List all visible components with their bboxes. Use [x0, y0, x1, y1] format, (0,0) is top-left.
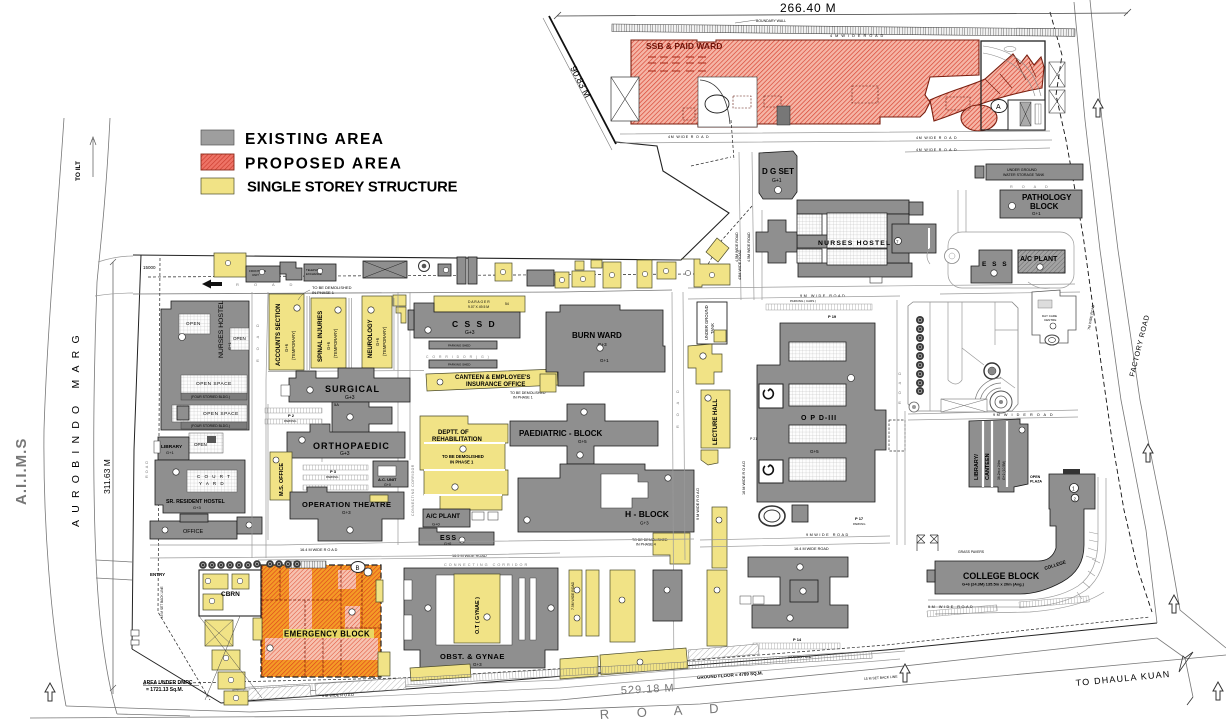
svg-text:IN PHASE 1: IN PHASE 1	[513, 396, 533, 400]
svg-text:G+6 (24.3M) 135.5m x 20m (Avg: G+6 (24.3M) 135.5m x 20m (Avg.)	[962, 582, 1025, 587]
svg-text:OPEN: OPEN	[233, 336, 246, 341]
svg-text:CONNECTING CORRIDOR: CONNECTING CORRIDOR	[444, 563, 529, 567]
svg-text:CANTEEN & EMPLOYEE'S: CANTEEN & EMPLOYEE'S	[455, 375, 530, 381]
svg-text:OPEN: OPEN	[194, 442, 207, 447]
svg-text:NURSES HOSTEL: NURSES HOSTEL	[818, 240, 891, 247]
svg-text:9M W I D E R O A D: 9M W I D E R O A D	[993, 413, 1054, 417]
svg-text:REHABILITATION: REHABILITATION	[432, 437, 482, 443]
svg-text:OPEN: OPEN	[186, 321, 201, 326]
svg-text:C S S D: C S S D	[452, 319, 497, 329]
svg-text:PARKING: PARKING	[853, 522, 865, 526]
svg-text:O P D-III: O P D-III	[801, 415, 837, 422]
svg-text:15000: 15000	[143, 265, 156, 270]
svg-text:4.5M WIDE ROAD: 4.5M WIDE ROAD	[747, 232, 751, 262]
svg-text:ENTRY: ENTRY	[150, 572, 165, 577]
svg-text:Y A R D: Y A R D	[199, 481, 225, 486]
svg-text:G+1: G+1	[166, 450, 174, 455]
svg-text:A.I.I.M.S: A.I.I.M.S	[13, 438, 30, 505]
svg-text:IN PHASE 1: IN PHASE 1	[312, 290, 335, 295]
svg-text:4M WIDE R O A D: 4M WIDE R O A D	[668, 135, 709, 139]
svg-text:UNIT: UNIT	[252, 273, 259, 277]
svg-text:A: A	[996, 104, 1001, 111]
svg-text:CBRN: CBRN	[221, 591, 240, 598]
svg-text:ORTHOPAEDIC: ORTHOPAEDIC	[313, 441, 390, 451]
svg-text:PARKING: PARKING	[284, 419, 296, 423]
svg-text:CANTEEN: CANTEEN	[985, 453, 991, 480]
svg-text:BURN WARD: BURN WARD	[572, 331, 622, 340]
svg-text:UNDER GROUND: UNDER GROUND	[704, 305, 709, 340]
svg-text:TO BE DEMOLISHED: TO BE DEMOLISHED	[442, 454, 484, 459]
svg-text:SSB & PAID WARD: SSB & PAID WARD	[646, 41, 722, 51]
svg-text:P 19: P 19	[828, 314, 837, 319]
svg-text:(FOUR STORIED BLDG.): (FOUR STORIED BLDG.)	[191, 424, 230, 428]
svg-text:IN PHASE 4: IN PHASE 4	[636, 543, 656, 547]
svg-text:9 M WIDE R O A D: 9 M WIDE R O A D	[696, 488, 700, 520]
svg-text:PARKING: PARKING	[326, 475, 338, 479]
svg-text:15 M SET BACK LINE: 15 M SET BACK LINE	[160, 586, 164, 618]
svg-text:PARKING SHED: PARKING SHED	[448, 363, 471, 367]
svg-text:OFFICE: OFFICE	[183, 529, 203, 535]
svg-text:(FOUR STORIED BLDG.): (FOUR STORIED BLDG.)	[191, 395, 230, 399]
svg-text:OPEN SPACE: OPEN SPACE	[196, 381, 232, 387]
svg-text:C O R R I D O R ( G ): C O R R I D O R ( G )	[426, 355, 490, 359]
svg-text:R O A D: R O A D	[676, 386, 680, 428]
svg-text:P 3: P 3	[330, 469, 337, 474]
svg-text:4 M W I D E R O A D: 4 M W I D E R O A D	[830, 34, 884, 38]
svg-text:ACCOUNTS SECTION: ACCOUNTS SECTION	[276, 304, 282, 366]
svg-text:NEUROLOGY: NEUROLOGY	[368, 319, 374, 358]
svg-text:PAEDIATRIC - BLOCK: PAEDIATRIC - BLOCK	[519, 429, 602, 438]
svg-text:G+6: G+6	[326, 341, 331, 350]
svg-text:OPEN SPACE: OPEN SPACE	[203, 411, 239, 417]
svg-text:CENTRE: CENTRE	[1044, 318, 1056, 322]
svg-text:A/C PLANT: A/C PLANT	[1020, 256, 1058, 263]
svg-text:311.63 M: 311.63 M	[102, 459, 112, 494]
svg-text:EMERGENCY BLOCK: EMERGENCY BLOCK	[284, 630, 370, 639]
svg-text:OBST. & GYNAE: OBST. & GYNAE	[440, 652, 505, 661]
svg-text:SPINAL INJURIES: SPINAL INJURIES	[318, 311, 324, 362]
svg-text:R O A D: R O A D	[256, 320, 260, 362]
svg-text:H - BLOCK: H - BLOCK	[625, 509, 670, 519]
svg-text:G+3: G+3	[345, 395, 355, 401]
svg-text:BOUNDARY WALL: BOUNDARY WALL	[756, 19, 786, 23]
svg-text:G+0: G+0	[384, 483, 391, 487]
svg-text:G+0: G+0	[432, 522, 440, 527]
svg-text:36.2m x 24m: 36.2m x 24m	[997, 460, 1001, 480]
svg-text:R O A D: R O A D	[898, 369, 902, 404]
svg-text:SURGICAL: SURGICAL	[325, 384, 380, 394]
svg-text:43M WIDE ROAD: 43M WIDE ROAD	[738, 249, 742, 280]
svg-text:B: B	[356, 566, 360, 572]
svg-text:PARKING SHED: PARKING SHED	[448, 344, 471, 348]
svg-text:GRASS PAVERS: GRASS PAVERS	[958, 550, 985, 554]
svg-text:AREA UNDER DMRC: AREA UNDER DMRC	[143, 680, 193, 686]
svg-text:A/C PLANT: A/C PLANT	[426, 513, 460, 520]
svg-text:G+3: G+3	[342, 510, 351, 515]
svg-text:G+6: G+6	[375, 337, 380, 346]
svg-text:OPEN: OPEN	[1030, 475, 1041, 479]
svg-text:PLAZA: PLAZA	[1030, 480, 1042, 484]
svg-text:= 1721.13 Sq.M.: = 1721.13 Sq.M.	[146, 687, 184, 693]
svg-text:PROPOSED AREA: PROPOSED AREA	[245, 156, 403, 173]
svg-text:C O U R T: C O U R T	[197, 474, 231, 479]
svg-text:PARKING ( CARS ): PARKING ( CARS )	[790, 299, 816, 303]
svg-text:G+3: G+3	[640, 521, 649, 526]
svg-text:16 M WIDE R O A D: 16 M WIDE R O A D	[742, 461, 746, 495]
svg-text:TO BE DEMOLISHED: TO BE DEMOLISHED	[632, 538, 668, 542]
svg-text:R O A D: R O A D	[236, 282, 299, 287]
svg-text:G+3: G+3	[473, 662, 482, 667]
svg-text:LIBRARY/: LIBRARY/	[974, 454, 980, 480]
svg-text:4M WIDE R O A D: 4M WIDE R O A D	[916, 148, 957, 152]
svg-text:DEPTT. OF: DEPTT. OF	[438, 430, 469, 436]
svg-text:AUROBINDO MARG: AUROBINDO MARG	[70, 328, 82, 527]
svg-text:INSURANCE OFFICE: INSURANCE OFFICE	[466, 382, 525, 388]
svg-text:G+2 (10.5M): G+2 (10.5M)	[1002, 461, 1006, 480]
svg-text:54: 54	[505, 302, 509, 306]
svg-text:R O A D: R O A D	[1010, 185, 1052, 189]
svg-text:4M WIDE R O A D: 4M WIDE R O A D	[916, 136, 957, 140]
svg-text:G+5: G+5	[578, 439, 587, 444]
svg-text:(TEMPORARY): (TEMPORARY)	[333, 328, 338, 358]
svg-text:CONNECTING CORRIDOR: CONNECTING CORRIDOR	[411, 464, 415, 516]
svg-text:D A R A G E R: D A R A G E R	[468, 300, 490, 304]
svg-text:16.4 M WIDE R O A D: 16.4 M WIDE R O A D	[300, 548, 338, 552]
svg-text:WATER STORAGE TANK: WATER STORAGE TANK	[1003, 173, 1045, 177]
svg-text:NURSES HOSTEL: NURSES HOSTEL	[218, 300, 225, 358]
svg-text:A.C. UNIT: A.C. UNIT	[378, 477, 397, 482]
svg-text:ROAD: ROAD	[145, 459, 149, 478]
svg-text:P 21: P 21	[750, 437, 757, 441]
svg-text:G+1: G+1	[772, 178, 782, 184]
svg-text:(TEMPORARY): (TEMPORARY)	[382, 326, 387, 356]
svg-text:M.S. OFFICE: M.S. OFFICE	[279, 463, 285, 496]
svg-text:SINGLE STOREY STRUCTURE: SINGLE STOREY STRUCTURE	[247, 180, 458, 196]
svg-text:P 14: P 14	[793, 637, 802, 642]
svg-text:G+3: G+3	[340, 451, 350, 457]
svg-text:(TEMPORARY): (TEMPORARY)	[291, 330, 296, 360]
svg-text:BLOCK: BLOCK	[1030, 202, 1059, 211]
svg-text:9MWIDE ROAD: 9MWIDE ROAD	[806, 533, 850, 537]
svg-text:PATHOLOGY: PATHOLOGY	[1022, 193, 1072, 202]
svg-text:G+1: G+1	[227, 342, 232, 350]
svg-text:G+0: G+0	[444, 542, 451, 546]
svg-text:E S S: E S S	[982, 261, 1009, 268]
svg-text:O.T ( GYNAE ): O.T ( GYNAE )	[475, 597, 481, 634]
svg-text:COLLEGE BLOCK: COLLEGE BLOCK	[963, 571, 1040, 581]
svg-text:IN PHASE 1: IN PHASE 1	[450, 460, 474, 465]
svg-text:P 17: P 17	[855, 516, 864, 521]
svg-text:G+5: G+5	[810, 449, 819, 454]
svg-text:7.5M WIDE ROAD: 7.5M WIDE ROAD	[571, 581, 575, 610]
svg-text:ESS: ESS	[440, 535, 457, 542]
svg-text:G+6: G+6	[284, 343, 289, 352]
svg-text:G+3: G+3	[193, 505, 201, 510]
svg-text:LECTURE HALL: LECTURE HALL	[713, 399, 719, 445]
svg-text:266.40 M: 266.40 M	[780, 1, 836, 15]
svg-text:P 2: P 2	[288, 413, 295, 418]
svg-text:1: 1	[1072, 487, 1075, 493]
svg-text:EXISTING AREA: EXISTING AREA	[245, 131, 385, 148]
svg-text:TO ILT: TO ILT	[75, 161, 82, 181]
svg-text:16.4 M WIDE ROAD: 16.4 M WIDE ROAD	[794, 547, 829, 551]
svg-text:5A: 5A	[334, 402, 339, 407]
svg-text:D G SET: D G SET	[762, 167, 794, 176]
svg-text:G+1: G+1	[1032, 211, 1041, 216]
svg-text:G+1: G+1	[600, 358, 609, 363]
svg-text:UNDER GROUND: UNDER GROUND	[1007, 168, 1037, 172]
svg-text:G+3: G+3	[465, 330, 475, 336]
svg-text:9.07 X 49.5 M: 9.07 X 49.5 M	[468, 305, 489, 309]
